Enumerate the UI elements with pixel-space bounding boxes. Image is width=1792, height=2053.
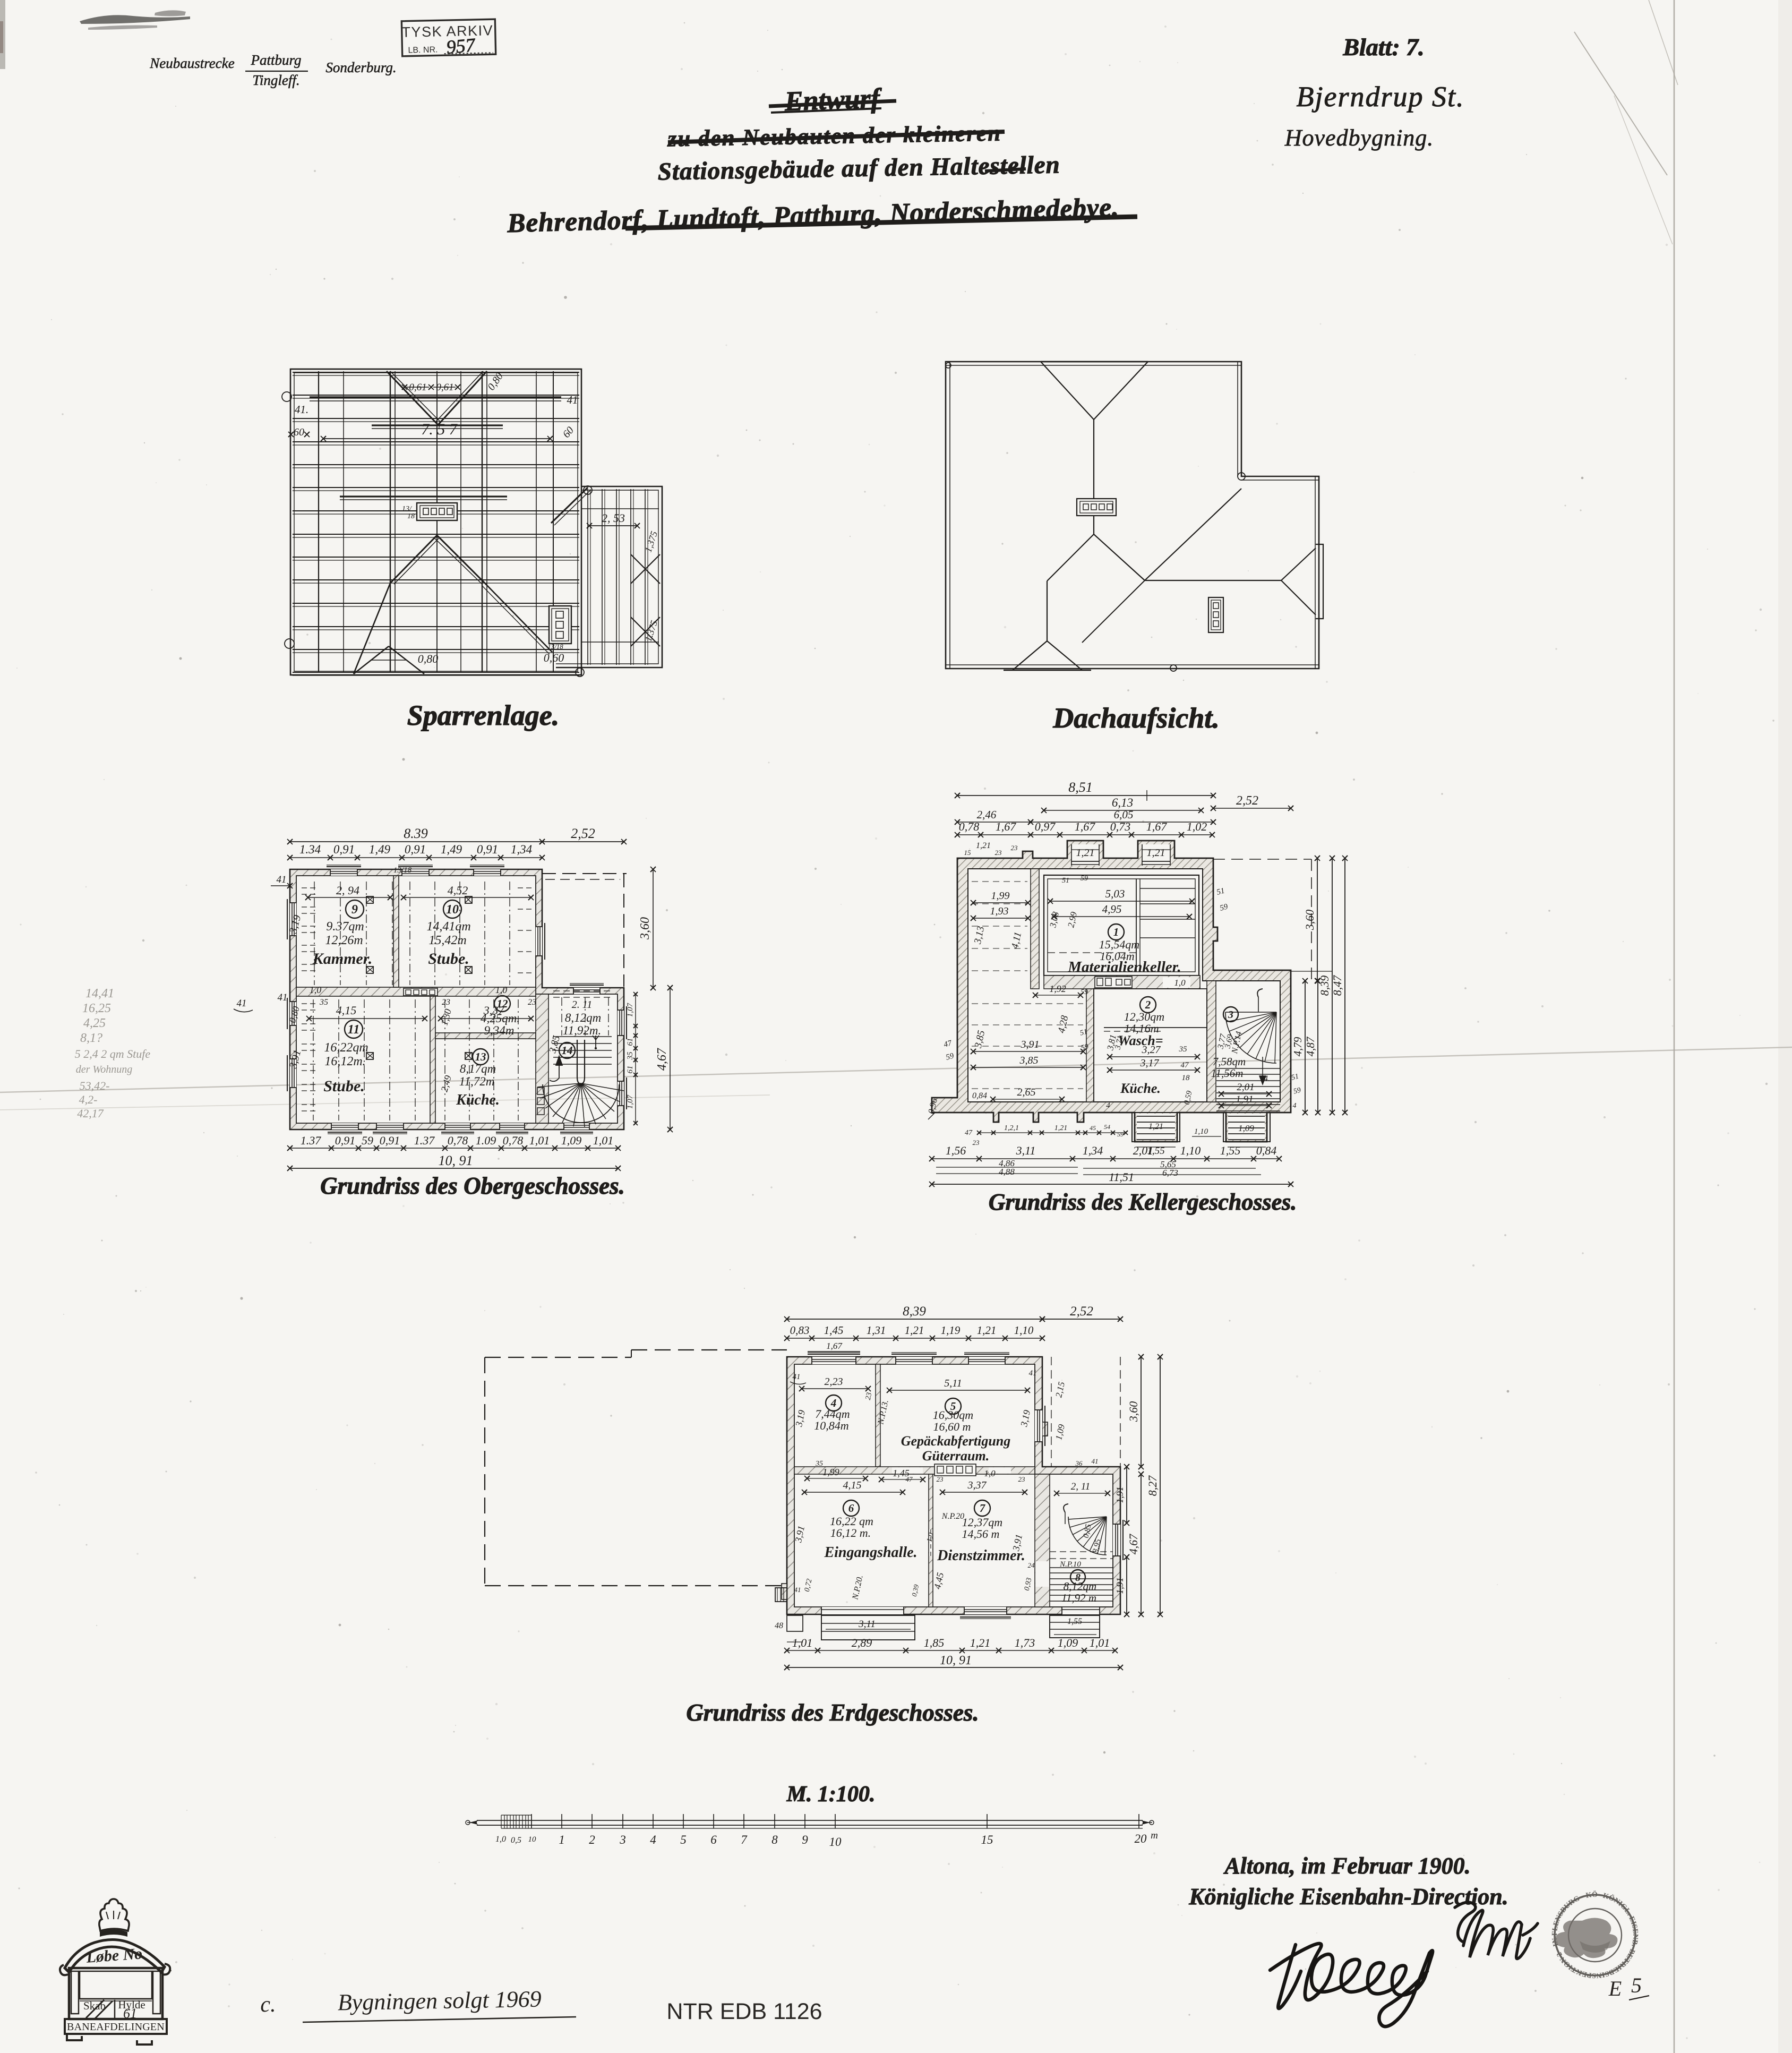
svg-text:4: 4: [1106, 1101, 1110, 1110]
svg-text:1,09: 1,09: [561, 1134, 582, 1147]
svg-text:1,92: 1,92: [1049, 983, 1066, 994]
svg-text:23: 23: [528, 998, 536, 1007]
svg-text:0,91: 0,91: [405, 843, 426, 856]
svg-text:6: 6: [848, 1502, 854, 1515]
svg-text:15: 15: [964, 849, 972, 857]
svg-text:Grundriss des Obergeschosses.: Grundriss des Obergeschosses.: [320, 1173, 625, 1199]
svg-text:1.34: 1.34: [299, 843, 321, 856]
svg-text:53,42-: 53,42-: [80, 1079, 110, 1092]
svg-text:1,21: 1,21: [970, 1636, 991, 1649]
svg-text:Küche.: Küche.: [1120, 1081, 1161, 1096]
svg-text:3,27: 3,27: [1142, 1044, 1161, 1056]
svg-text:4,52: 4,52: [448, 884, 468, 897]
svg-text:6: 6: [710, 1833, 717, 1846]
svg-text:1,10: 1,10: [1014, 1324, 1034, 1337]
svg-text:4,87: 4,87: [1304, 1036, 1317, 1056]
svg-text:7: 7: [980, 1502, 986, 1515]
svg-text:15,42m: 15,42m: [428, 934, 466, 947]
svg-text:54: 54: [1104, 1123, 1110, 1131]
svg-text:1,67: 1,67: [996, 820, 1017, 833]
svg-text:16,25: 16,25: [82, 1002, 111, 1015]
svg-text:47: 47: [1181, 1061, 1190, 1070]
svg-text:c.: c.: [260, 1992, 276, 2017]
svg-text:2,52: 2,52: [1236, 794, 1258, 808]
svg-text:Stube.: Stube.: [428, 950, 469, 968]
svg-text:0,83: 0,83: [790, 1324, 810, 1337]
svg-text:14,56 m: 14,56 m: [962, 1527, 1000, 1541]
svg-text:5: 5: [1631, 1973, 1642, 1997]
svg-text:24: 24: [1028, 1561, 1035, 1569]
svg-text:0,78: 0,78: [959, 820, 980, 833]
svg-text:6,13: 6,13: [1112, 796, 1133, 809]
svg-text:1,91: 1,91: [1236, 1094, 1253, 1105]
svg-text:1,31: 1,31: [867, 1324, 886, 1337]
svg-text:Grundriss des Erdgeschosses.: Grundriss des Erdgeschosses.: [686, 1699, 979, 1726]
svg-text:0,84: 0,84: [972, 1091, 987, 1100]
svg-text:20: 20: [1135, 1832, 1147, 1845]
svg-text:10, 91: 10, 91: [439, 1153, 473, 1168]
svg-text:1,55: 1,55: [1220, 1144, 1241, 1157]
svg-text:0,80: 0,80: [418, 652, 439, 665]
svg-text:1,67: 1,67: [1075, 820, 1096, 833]
svg-text:1,0: 1,0: [310, 985, 322, 995]
svg-text:4,79: 4,79: [1291, 1037, 1304, 1056]
svg-text:23: 23: [1011, 844, 1018, 852]
svg-text:61: 61: [626, 1038, 635, 1046]
svg-text:1,0: 1,0: [495, 985, 508, 995]
svg-text:E: E: [1608, 1977, 1622, 2000]
svg-text:1,09: 1,09: [1058, 1636, 1078, 1649]
svg-text:9.37qm: 9.37qm: [326, 920, 364, 934]
svg-text:9: 9: [802, 1833, 808, 1846]
svg-text:4,95: 4,95: [1102, 903, 1122, 916]
svg-text:41: 41: [1029, 1369, 1037, 1378]
svg-text:8: 8: [771, 1833, 778, 1846]
svg-text:1,09: 1,09: [1238, 1123, 1254, 1133]
svg-text:11,92m.: 11,92m.: [563, 1024, 601, 1037]
svg-text:7,58qm: 7,58qm: [1213, 1055, 1246, 1068]
svg-text:8,12qm: 8,12qm: [1064, 1580, 1096, 1593]
svg-text:23: 23: [937, 1475, 944, 1483]
svg-text:9,34m: 9,34m: [484, 1024, 515, 1037]
svg-text:8,12qm: 8,12qm: [565, 1011, 601, 1024]
svg-text:13/: 13/: [402, 505, 412, 513]
svg-text:1,0: 1,0: [495, 1835, 506, 1844]
svg-text:3,37: 3,37: [483, 1004, 505, 1017]
svg-text:1,93: 1,93: [990, 905, 1009, 917]
svg-text:3,85: 3,85: [1019, 1055, 1039, 1066]
svg-text:Stube.: Stube.: [323, 1077, 365, 1095]
svg-text:1,73: 1,73: [1015, 1636, 1035, 1649]
svg-text:Neubaustrecke: Neubaustrecke: [149, 55, 234, 71]
svg-text:1,01: 1,01: [1090, 1636, 1110, 1649]
svg-text:0,91: 0,91: [477, 843, 498, 856]
svg-text:Grundriss des Kellergeschosses: Grundriss des Kellergeschosses.: [989, 1189, 1297, 1215]
svg-text:957: 957: [445, 34, 477, 58]
svg-text:47: 47: [906, 1475, 913, 1483]
svg-text:M. 1:100.: M. 1:100.: [786, 1782, 876, 1807]
svg-text:16,12 m.: 16,12 m.: [830, 1526, 871, 1539]
svg-text:0,60: 0,60: [544, 651, 564, 664]
svg-text:Gepäckabfertigung: Gepäckabfertigung: [901, 1433, 1011, 1449]
svg-text:1,07: 1,07: [626, 1002, 635, 1017]
svg-text:11,72m: 11,72m: [459, 1075, 495, 1088]
svg-text:2,01: 2,01: [1237, 1082, 1254, 1093]
svg-text:7. 5 7: 7. 5 7: [421, 421, 458, 438]
svg-text:41: 41: [1092, 1457, 1099, 1465]
svg-text:2,89: 2,89: [852, 1636, 872, 1649]
svg-text:59: 59: [1081, 875, 1088, 883]
svg-text:8,39: 8,39: [903, 1304, 926, 1319]
svg-text:0,97: 0,97: [1035, 820, 1056, 833]
svg-text:18: 18: [1182, 1074, 1190, 1082]
svg-text:41: 41: [237, 998, 247, 1009]
svg-text:23: 23: [1018, 1475, 1026, 1483]
svg-text:0,5: 0,5: [511, 1836, 521, 1845]
svg-text:2,46: 2,46: [977, 808, 997, 821]
svg-text:2. 11: 2. 11: [572, 999, 593, 1011]
svg-text:4,2-: 4,2-: [79, 1093, 98, 1106]
svg-text:35: 35: [815, 1460, 823, 1468]
svg-text:13: 13: [475, 1050, 486, 1063]
svg-text:14,41qm: 14,41qm: [426, 920, 470, 934]
svg-text:41: 41: [793, 1373, 801, 1381]
svg-text:10: 10: [528, 1835, 537, 1844]
svg-text:1,67: 1,67: [1146, 820, 1168, 833]
svg-text:4,15: 4,15: [843, 1479, 862, 1491]
svg-text:1,10: 1,10: [1194, 1127, 1208, 1136]
svg-text:1,21: 1,21: [1148, 1122, 1163, 1131]
svg-text:4: 4: [1293, 1102, 1297, 1110]
svg-text:45: 45: [1090, 1124, 1096, 1132]
svg-text:1,85: 1,85: [924, 1636, 945, 1649]
svg-text:59: 59: [1117, 1131, 1124, 1138]
svg-text:23: 23: [995, 849, 1002, 857]
svg-text:14,41: 14,41: [85, 987, 114, 1000]
svg-text:1,91: 1,91: [1114, 1577, 1125, 1594]
svg-text:1,55: 1,55: [1067, 1617, 1082, 1626]
svg-text:41: 41: [567, 394, 578, 406]
svg-text:3,60: 3,60: [1127, 1401, 1140, 1423]
svg-text:1,01: 1,01: [529, 1134, 550, 1147]
svg-text:8,51: 8,51: [1068, 780, 1093, 795]
svg-text:1,01: 1,01: [593, 1134, 614, 1147]
svg-text:BANEAFDELINGEN: BANEAFDELINGEN: [67, 2021, 165, 2033]
svg-text:1,21: 1,21: [977, 1324, 997, 1337]
svg-text:Blatt: 7.: Blatt: 7.: [1342, 33, 1424, 61]
svg-text:1: 1: [1113, 926, 1119, 938]
svg-text:5,03: 5,03: [1105, 887, 1125, 900]
svg-text:10: 10: [446, 903, 459, 917]
svg-text:1,56: 1,56: [946, 1144, 966, 1157]
svg-text:4,67: 4,67: [655, 1048, 669, 1071]
svg-text:13/18: 13/18: [547, 643, 563, 651]
svg-text:61: 61: [626, 1066, 635, 1074]
svg-text:10, 91: 10, 91: [940, 1654, 972, 1667]
svg-text:3,37: 3,37: [967, 1479, 987, 1491]
svg-text:1,34: 1,34: [1083, 1144, 1103, 1157]
svg-text:0,78: 0,78: [503, 1134, 524, 1147]
svg-text:1,21: 1,21: [905, 1324, 924, 1337]
svg-text:Bygningen solgt 1969: Bygningen solgt 1969: [337, 1986, 542, 2016]
svg-text:2: 2: [1145, 998, 1151, 1011]
svg-text:0,91: 0,91: [380, 1134, 400, 1147]
svg-text:2,52: 2,52: [1070, 1304, 1093, 1319]
svg-text:42,17: 42,17: [77, 1107, 104, 1120]
svg-text:1,02: 1,02: [1187, 820, 1207, 833]
svg-text:23: 23: [973, 1139, 980, 1147]
svg-text:11: 11: [348, 1023, 360, 1037]
svg-text:Kammer.: Kammer.: [312, 950, 373, 968]
svg-text:9: 9: [351, 903, 358, 917]
svg-text:2,52: 2,52: [571, 826, 595, 841]
svg-text:3,11: 3,11: [858, 1619, 876, 1630]
svg-text:7: 7: [741, 1833, 748, 1846]
svg-text:3,17: 3,17: [1140, 1057, 1160, 1069]
svg-text:3,60: 3,60: [638, 917, 652, 940]
svg-text:1,21: 1,21: [976, 841, 991, 850]
svg-text:4,25: 4,25: [83, 1016, 106, 1030]
svg-text:0,78: 0,78: [448, 1134, 468, 1147]
svg-text:1,99: 1,99: [991, 890, 1010, 902]
svg-text:Materialienkeller.: Materialienkeller.: [1067, 959, 1181, 976]
svg-text:35: 35: [319, 998, 328, 1007]
svg-text:47: 47: [965, 1129, 973, 1137]
svg-text:16,22qm: 16,22qm: [324, 1041, 368, 1055]
svg-text:1,2,1: 1,2,1: [1004, 1124, 1019, 1132]
svg-text:Altona, im Februar 1900.: Altona, im Februar 1900.: [1223, 1853, 1470, 1879]
svg-text:Güterraum.: Güterraum.: [922, 1448, 989, 1464]
svg-text:1,01: 1,01: [792, 1636, 813, 1649]
svg-text:8,17qm: 8,17qm: [460, 1062, 496, 1075]
svg-text:Pattburg: Pattburg: [250, 52, 301, 68]
svg-text:1,21: 1,21: [1076, 847, 1095, 859]
svg-text:4.: 4.: [1264, 1074, 1270, 1083]
svg-text:1,19: 1,19: [941, 1324, 961, 1337]
svg-text:16,60 m: 16,60 m: [933, 1420, 971, 1433]
svg-text:1,91: 1,91: [1114, 1486, 1125, 1503]
svg-text:12,26m: 12,26m: [325, 934, 363, 947]
svg-text:0,91: 0,91: [333, 843, 355, 856]
svg-text:41: 41: [278, 992, 288, 1003]
svg-text:1.37: 1.37: [301, 1134, 322, 1147]
svg-text:1,21: 1,21: [1147, 847, 1165, 859]
svg-text:Sparrenlage.: Sparrenlage.: [407, 699, 560, 731]
svg-text:1,21: 1,21: [1054, 1124, 1068, 1132]
svg-text:10,84m: 10,84m: [814, 1419, 848, 1432]
svg-text:6,73: 6,73: [1162, 1168, 1178, 1178]
svg-text:2,65: 2,65: [1017, 1087, 1036, 1098]
svg-text:2, 11: 2, 11: [1071, 1481, 1091, 1492]
svg-text:41.: 41.: [295, 403, 308, 416]
svg-text:5,11: 5,11: [944, 1378, 962, 1389]
svg-text:4,67: 4,67: [1127, 1534, 1140, 1555]
svg-text:2,23: 2,23: [825, 1376, 843, 1388]
svg-text:Tingleff.: Tingleff.: [252, 72, 299, 88]
svg-text:0,84: 0,84: [1256, 1144, 1277, 1157]
svg-text:51: 51: [1062, 877, 1069, 885]
svg-text:59: 59: [362, 1134, 373, 1147]
svg-text:3,11: 3,11: [1016, 1144, 1036, 1157]
svg-text:10: 10: [829, 1835, 842, 1849]
svg-text:5: 5: [680, 1833, 687, 1846]
svg-text:1.09: 1.09: [476, 1134, 496, 1147]
svg-text:3,91: 3,91: [1021, 1039, 1040, 1050]
svg-text:48: 48: [775, 1621, 783, 1630]
svg-text:Eingangshalle.: Eingangshalle.: [824, 1544, 917, 1561]
svg-text:15: 15: [981, 1833, 993, 1846]
svg-text:4,15: 4,15: [336, 1004, 357, 1017]
svg-text:1,49: 1,49: [369, 843, 391, 856]
svg-text:11,92 m: 11,92 m: [1061, 1592, 1096, 1604]
svg-text:8,1?: 8,1?: [80, 1031, 102, 1045]
svg-text:1,10: 1,10: [1180, 1144, 1201, 1157]
svg-text:8.39: 8.39: [404, 826, 428, 841]
svg-text:2, 94: 2, 94: [336, 884, 359, 897]
svg-text:m: m: [1151, 1830, 1158, 1841]
svg-text:Sonderburg.: Sonderburg.: [325, 59, 396, 75]
svg-text:2: 2: [589, 1833, 595, 1846]
svg-text:36: 36: [1075, 1459, 1083, 1467]
svg-text:NTR EDB 1126: NTR EDB 1126: [666, 1999, 822, 2024]
svg-text:1,34: 1,34: [511, 843, 532, 856]
svg-text:2, 53: 2, 53: [602, 511, 625, 525]
svg-text:Dachaufsicht.: Dachaufsicht.: [1052, 702, 1220, 734]
svg-text:35: 35: [1179, 1045, 1188, 1054]
svg-text:35: 35: [626, 1051, 635, 1060]
svg-text:8,27: 8,27: [1146, 1475, 1159, 1496]
svg-text:4: 4: [650, 1833, 656, 1846]
svg-text:N.P.20: N.P.20: [941, 1512, 964, 1521]
svg-text:der Wohnung: der Wohnung: [76, 1064, 132, 1075]
svg-text:2,01: 2,01: [1133, 1144, 1154, 1157]
svg-text:Hovedbygning.: Hovedbygning.: [1284, 125, 1434, 151]
svg-text:1,0: 1,0: [1174, 978, 1186, 988]
svg-text:0,73: 0,73: [1110, 820, 1131, 833]
svg-text:Küche.: Küche.: [456, 1092, 500, 1108]
svg-text:0,91: 0,91: [335, 1134, 356, 1147]
svg-text:6,05: 6,05: [1114, 808, 1134, 821]
svg-text:60: 60: [294, 426, 304, 438]
svg-text:LB. NR.: LB. NR.: [408, 45, 438, 55]
svg-text:5 2,4 2 qm Stufe: 5 2,4 2 qm Stufe: [75, 1047, 151, 1060]
svg-text:11,51: 11,51: [1109, 1170, 1134, 1184]
svg-text:1,99: 1,99: [822, 1467, 839, 1477]
svg-text:3: 3: [1228, 1009, 1233, 1021]
svg-text:3,60: 3,60: [1303, 910, 1316, 931]
svg-text:1,67: 1,67: [826, 1341, 843, 1351]
svg-text:N.P.10: N.P.10: [1059, 1560, 1081, 1569]
svg-text:1.37: 1.37: [414, 1134, 435, 1147]
svg-text:1,07: 1,07: [626, 1094, 635, 1109]
svg-text:1,45: 1,45: [824, 1324, 844, 1337]
svg-text:41: 41: [794, 1586, 801, 1594]
svg-text:1,0: 1,0: [984, 1468, 996, 1478]
svg-text:41: 41: [277, 874, 287, 885]
svg-text:23: 23: [442, 998, 450, 1007]
svg-text:18: 18: [407, 512, 415, 520]
svg-text:1: 1: [559, 1833, 565, 1846]
svg-text:8,47: 8,47: [1331, 975, 1344, 996]
svg-text:16,12m.: 16,12m.: [324, 1055, 365, 1068]
svg-text:11,56m: 11,56m: [1211, 1067, 1244, 1080]
svg-text:3: 3: [619, 1833, 626, 1846]
svg-text:1,49: 1,49: [441, 843, 462, 856]
svg-text:59: 59: [1081, 988, 1088, 996]
svg-text:4,88: 4,88: [999, 1167, 1015, 1177]
svg-text:13/18: 13/18: [393, 866, 412, 875]
svg-text:Bjerndrup St.: Bjerndrup St.: [1297, 81, 1465, 113]
